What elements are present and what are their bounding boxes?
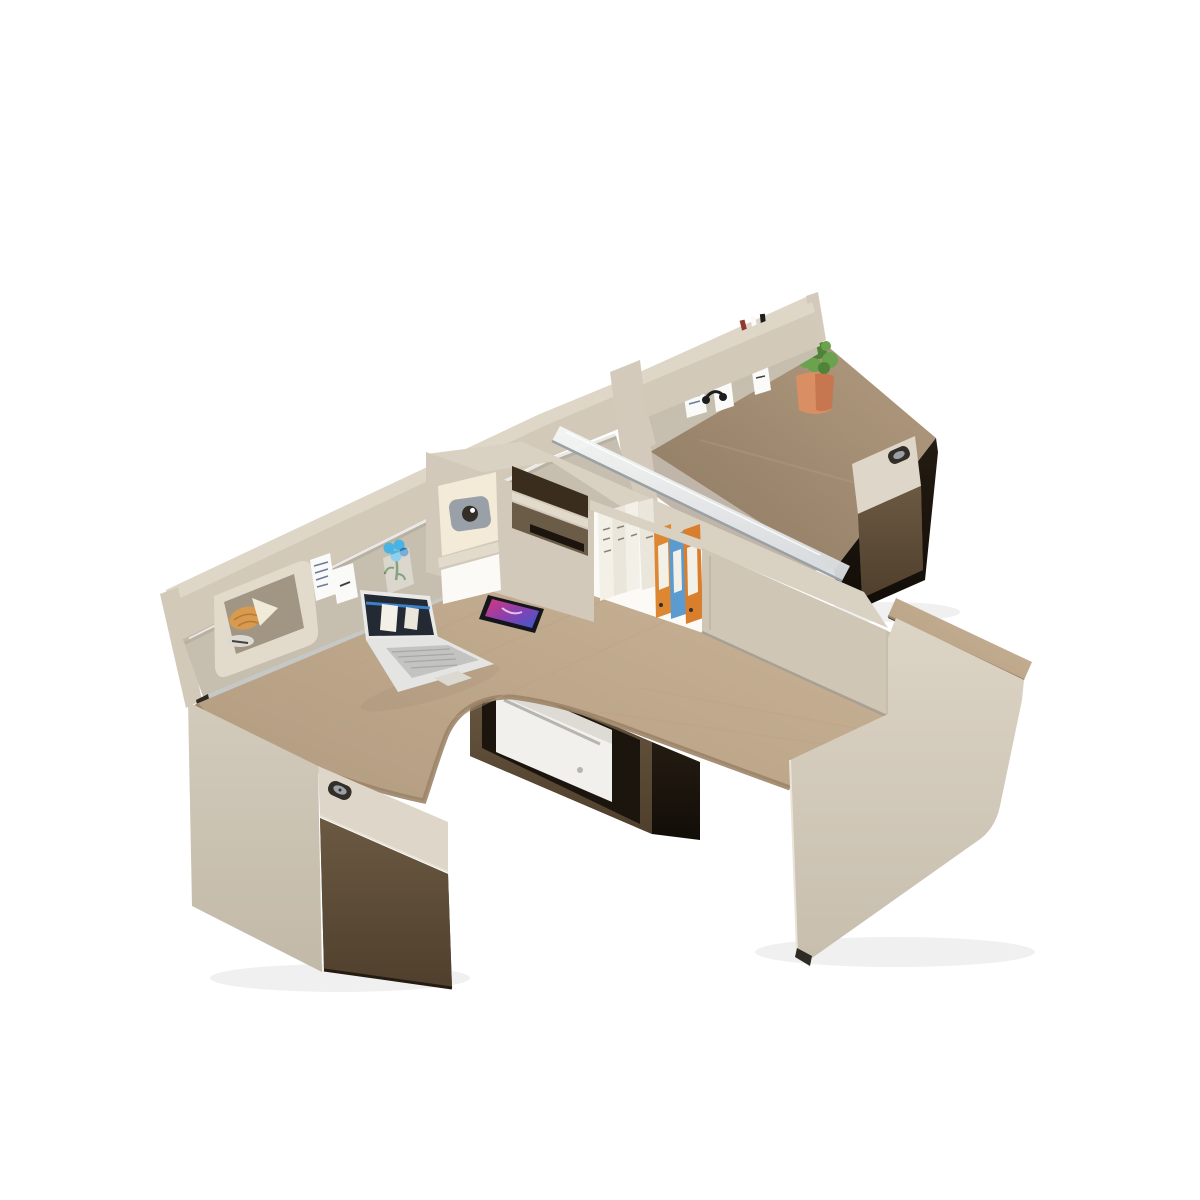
- camera: [448, 495, 492, 532]
- laptop-screen: [364, 594, 434, 636]
- product-photo: [0, 0, 1200, 1200]
- screen-card-1: [380, 604, 398, 632]
- workstation-illustration: [0, 0, 1200, 1200]
- plant-pot-shade: [815, 373, 834, 411]
- screen-card-2: [404, 607, 419, 630]
